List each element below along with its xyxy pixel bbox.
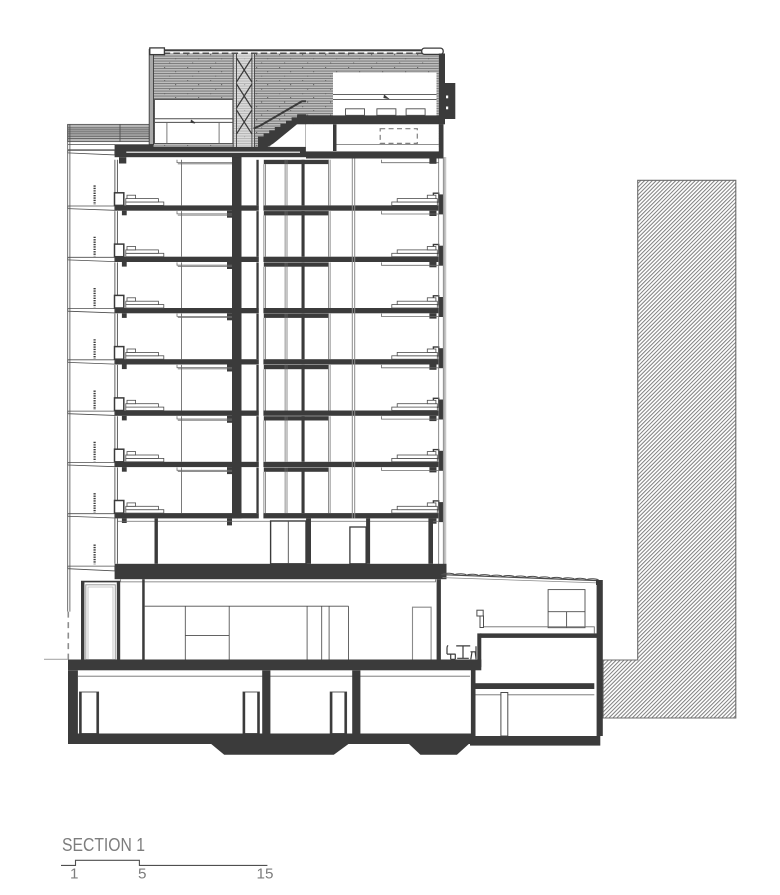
svg-text:5: 5 xyxy=(138,866,146,883)
svg-text:1: 1 xyxy=(70,866,78,883)
svg-text:15: 15 xyxy=(257,866,274,883)
svg-text:SECTION 1: SECTION 1 xyxy=(62,834,145,855)
